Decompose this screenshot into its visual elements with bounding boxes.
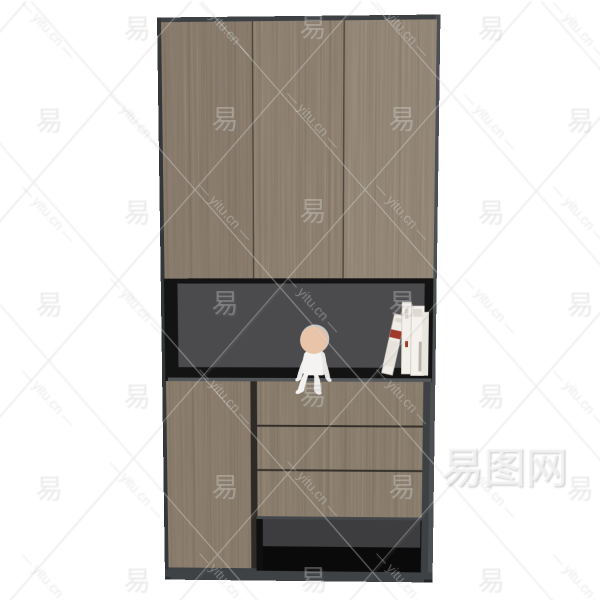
svg-text:易图网: 易图网: [441, 444, 567, 491]
